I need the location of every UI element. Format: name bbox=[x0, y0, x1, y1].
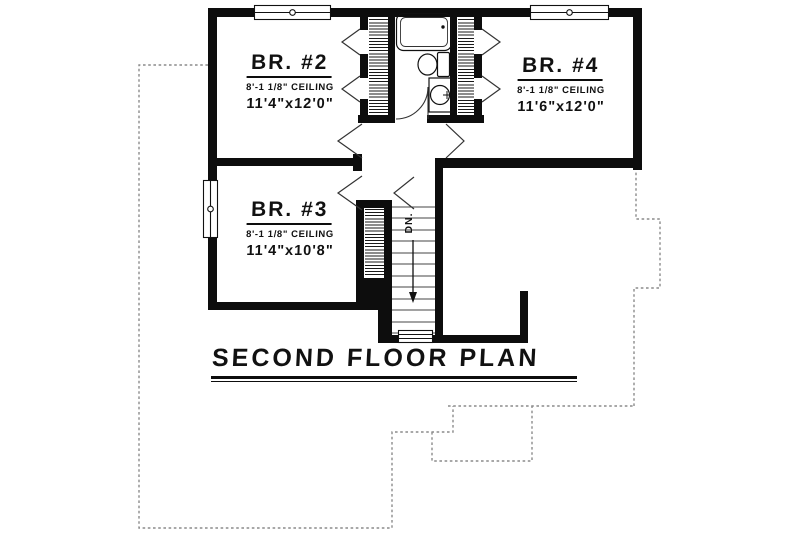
room-name-br3: BR. #3 bbox=[247, 199, 333, 225]
br4-closet-door-icon-top bbox=[482, 29, 500, 55]
room-dims-br3: 11'4"x10'8" bbox=[228, 243, 353, 259]
room-dims-br4: 11'6"x12'0" bbox=[499, 99, 624, 115]
window-icon-left bbox=[204, 181, 218, 238]
bathtub-icon bbox=[397, 14, 452, 51]
room-name-br2: BR. #2 bbox=[247, 52, 333, 78]
sink-vanity-icon bbox=[429, 78, 453, 112]
room-label-br2: BR. #2 8'-1 1/8" CEILING 11'4"x12'0" bbox=[228, 52, 352, 112]
floor-plan-canvas: BR. #2 8'-1 1/8" CEILING 11'4"x12'0" BR.… bbox=[0, 0, 800, 533]
br2-entry-door-icon bbox=[338, 124, 362, 158]
br4-entry-door-icon bbox=[446, 124, 464, 158]
first-floor-outline bbox=[139, 65, 660, 528]
room-name-br4: BR. #4 bbox=[518, 55, 604, 81]
title-underline-thick bbox=[211, 376, 577, 379]
window-icon-top-right bbox=[531, 6, 609, 20]
title-underline-thin bbox=[211, 381, 577, 382]
room-label-br3: BR. #3 8'-1 1/8" CEILING 11'4"x10'8" bbox=[228, 199, 352, 259]
bathroom-door-swing-icon bbox=[396, 87, 428, 119]
br4-closet-door-icon-bottom bbox=[482, 76, 500, 102]
page-title: SECOND FLOOR PLAN bbox=[211, 344, 540, 373]
plan-linework bbox=[0, 0, 800, 533]
window-icon-stair bbox=[399, 331, 433, 343]
room-ceiling-br3: 8'-1 1/8" CEILING bbox=[228, 229, 352, 240]
room-ceiling-br2: 8'-1 1/8" CEILING bbox=[228, 82, 352, 93]
room-dims-br2: 11'4"x12'0" bbox=[228, 96, 353, 112]
window-icon-top-left bbox=[255, 6, 331, 20]
toilet-icon bbox=[418, 53, 450, 77]
door-swing-icons bbox=[338, 29, 500, 210]
stairs-dn-label: DN. bbox=[403, 193, 419, 253]
room-ceiling-br4: 8'-1 1/8" CEILING bbox=[499, 85, 623, 96]
room-label-br4: BR. #4 8'-1 1/8" CEILING 11'6"x12'0" bbox=[499, 55, 623, 115]
